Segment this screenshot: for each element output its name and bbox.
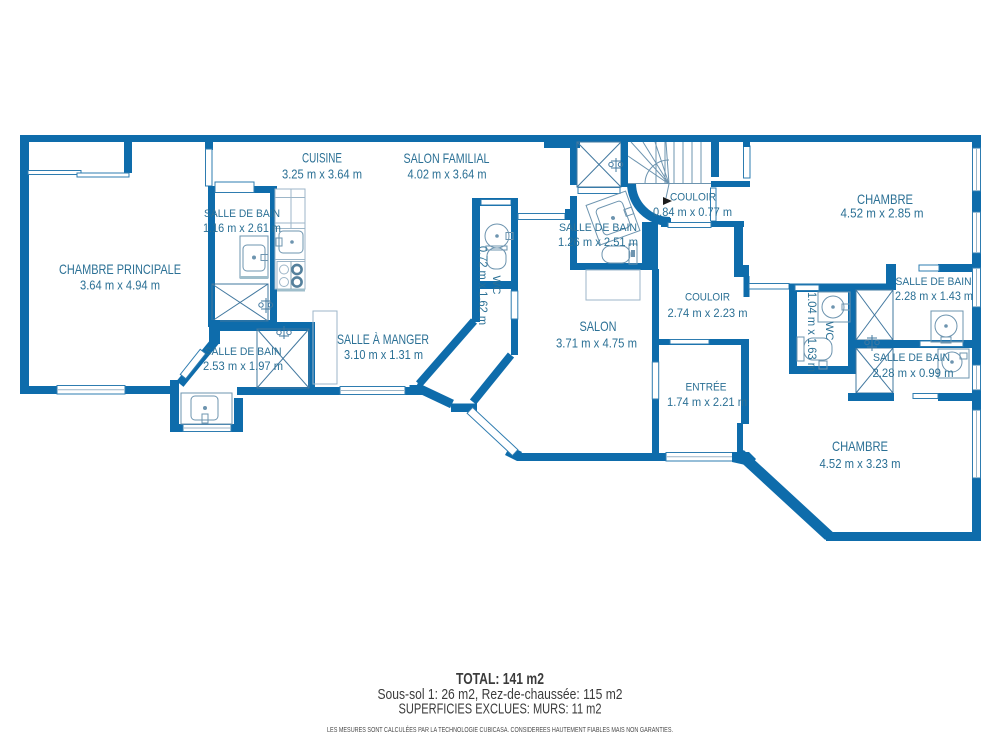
svg-text:SALLE DE BAIN: SALLE DE BAIN [205,346,282,358]
svg-text:SALLE À MANGER: SALLE À MANGER [337,331,429,347]
svg-text:COULOIR: COULOIR [670,192,716,204]
svg-text:4.52 m x 2.85 m: 4.52 m x 2.85 m [841,206,924,221]
svg-text:3.10 m x 1.31 m: 3.10 m x 1.31 m [344,347,423,362]
svg-text:SALON: SALON [580,318,617,334]
svg-text:SALLE DE BAIN: SALLE DE BAIN [204,208,280,220]
svg-text:WC: WC [490,276,502,295]
svg-text:1.26 m x 2.51 m: 1.26 m x 2.51 m [558,235,638,249]
svg-text:0.72 m x 1.62 m: 0.72 m x 1.62 m [476,246,490,325]
svg-text:SALLE DE BAIN: SALLE DE BAIN [896,276,972,288]
svg-text:COULOIR: COULOIR [685,292,730,304]
svg-text:3.64 m x 4.94 m: 3.64 m x 4.94 m [80,278,160,293]
svg-text:SALLE DE BAIN: SALLE DE BAIN [873,352,950,364]
svg-text:CUISINE: CUISINE [302,150,342,166]
svg-text:CHAMBRE PRINCIPALE: CHAMBRE PRINCIPALE [59,261,181,277]
svg-text:CHAMBRE: CHAMBRE [832,438,888,454]
svg-text:3.25 m x 3.64 m: 3.25 m x 3.64 m [282,167,362,182]
svg-text:4.02 m x 3.64 m: 4.02 m x 3.64 m [408,167,487,182]
svg-text:3.71 m x 4.75 m: 3.71 m x 4.75 m [556,336,637,351]
svg-text:ENTRÉE: ENTRÉE [686,381,727,394]
svg-text:1.04 m x 1.63 m: 1.04 m x 1.63 m [805,292,819,372]
svg-text:1.74 m x 2.21 m: 1.74 m x 2.21 m [667,395,747,409]
svg-text:LES MESURES SONT CALCULÉES PAR: LES MESURES SONT CALCULÉES PAR LA TECHNO… [327,725,673,734]
svg-text:2.74 m x 2.23 m: 2.74 m x 2.23 m [668,306,748,320]
svg-text:SUPERFICIES EXCLUES: MURS: 11: SUPERFICIES EXCLUES: MURS: 11 m2 [399,701,602,718]
svg-text:0.84 m x 0.77 m: 0.84 m x 0.77 m [653,205,732,219]
svg-text:2.28 m x 0.99 m: 2.28 m x 0.99 m [873,366,954,380]
svg-text:SALON FAMILIAL: SALON FAMILIAL [404,150,490,166]
svg-text:2.28 m x 1.43 m: 2.28 m x 1.43 m [895,289,973,303]
svg-text:WC: WC [823,322,835,341]
svg-text:1.16 m x 2.61 m: 1.16 m x 2.61 m [203,221,281,235]
svg-text:4.52 m x 3.23 m: 4.52 m x 3.23 m [820,456,901,471]
svg-text:SALLE DE BAIN: SALLE DE BAIN [559,222,637,234]
svg-text:2.53 m x 1.97 m: 2.53 m x 1.97 m [203,359,283,373]
